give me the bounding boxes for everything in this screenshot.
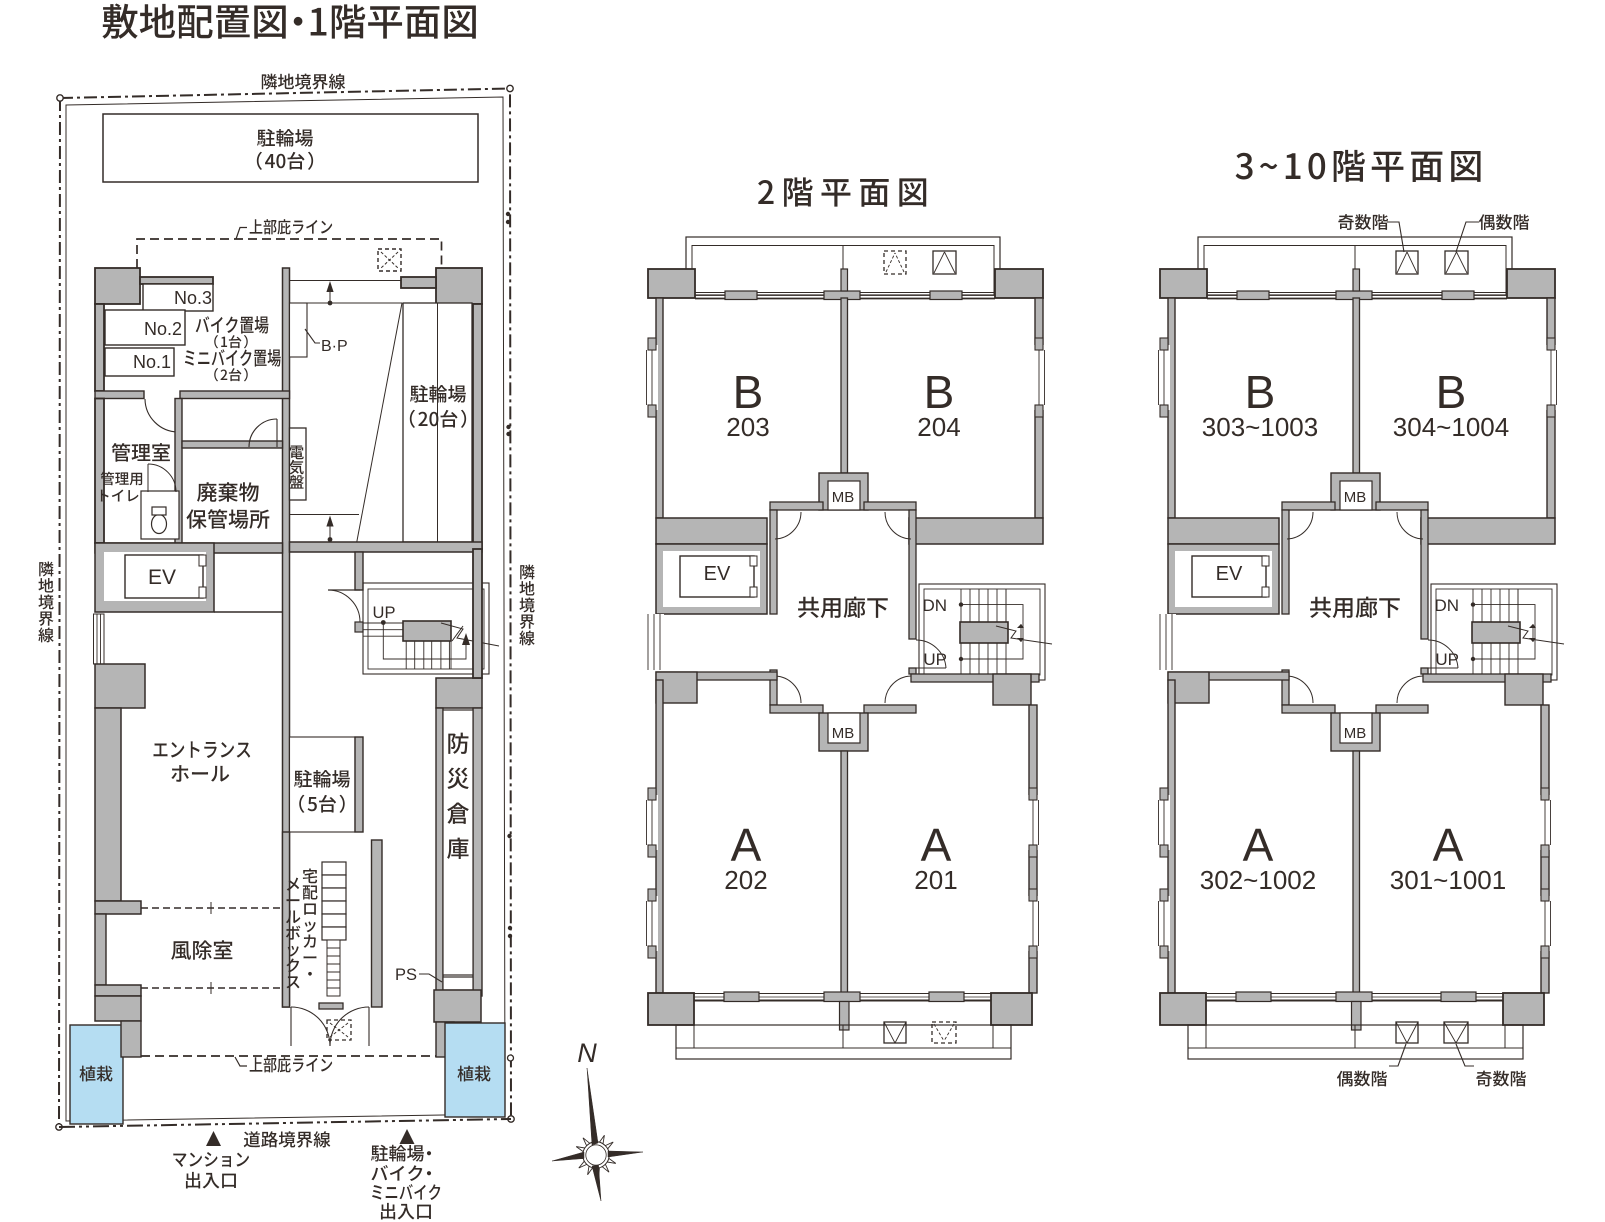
svg-text:A: A xyxy=(1243,819,1274,871)
svg-text:B: B xyxy=(733,366,764,418)
svg-text:PS: PS xyxy=(395,966,417,984)
svg-text:202: 202 xyxy=(724,865,767,895)
svg-text:A: A xyxy=(921,819,952,871)
svg-text:301~1001: 301~1001 xyxy=(1390,865,1506,895)
svg-text:No.1: No.1 xyxy=(133,352,171,372)
svg-text:EV: EV xyxy=(148,566,176,589)
svg-text:UP: UP xyxy=(373,604,396,622)
svg-text:No.2: No.2 xyxy=(144,319,182,339)
svg-text:A: A xyxy=(1433,819,1464,871)
svg-text:No.3: No.3 xyxy=(174,288,212,308)
svg-text:203: 203 xyxy=(726,412,769,442)
svg-text:UP: UP xyxy=(923,650,947,669)
svg-text:B·P: B·P xyxy=(321,338,348,355)
svg-text:N: N xyxy=(577,1038,597,1068)
svg-text:EV: EV xyxy=(1216,563,1243,585)
svg-text:MB: MB xyxy=(832,725,855,742)
svg-text:DN: DN xyxy=(922,596,947,615)
svg-text:204: 204 xyxy=(917,412,960,442)
svg-text:DN: DN xyxy=(1434,596,1459,615)
svg-text:302~1002: 302~1002 xyxy=(1200,865,1316,895)
svg-text:UP: UP xyxy=(1435,650,1459,669)
svg-text:MB: MB xyxy=(832,489,855,506)
svg-text:B: B xyxy=(1436,366,1467,418)
svg-text:B: B xyxy=(924,366,955,418)
svg-text:304~1004: 304~1004 xyxy=(1393,412,1509,442)
svg-text:B: B xyxy=(1245,366,1276,418)
svg-text:EV: EV xyxy=(704,563,731,585)
svg-text:MB: MB xyxy=(1344,725,1367,742)
svg-text:201: 201 xyxy=(914,865,957,895)
svg-text:A: A xyxy=(731,819,762,871)
svg-text:MB: MB xyxy=(1344,489,1367,506)
svg-text:303~1003: 303~1003 xyxy=(1202,412,1318,442)
